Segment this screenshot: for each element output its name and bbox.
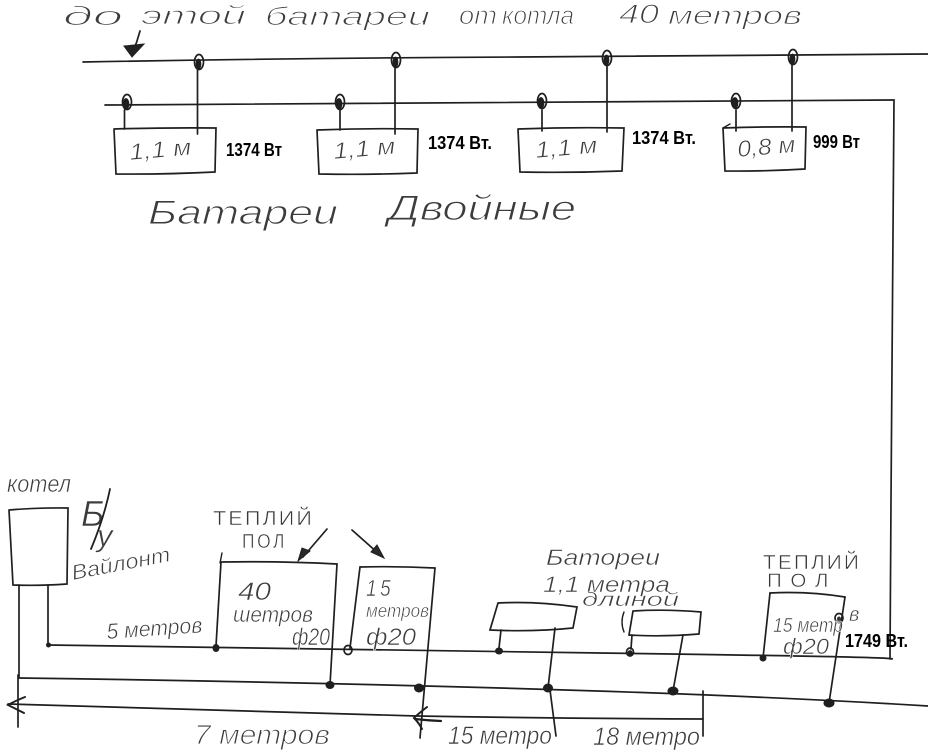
svg-text:1374 Вт.: 1374 Вт. [428,133,492,153]
svg-text:1,1 м: 1,1 м [332,133,396,164]
svg-text:от: от [459,0,497,30]
svg-text:метров: метров [366,601,429,621]
svg-text:1,1 м: 1,1 м [534,132,598,163]
svg-text:1374 Вт: 1374 Вт [226,140,282,160]
svg-text:0,8 м: 0,8 м [736,131,796,162]
svg-text:до: до [63,1,123,31]
svg-text:ТЕПЛИЙ: ТЕПЛИЙ [213,506,314,530]
svg-text:котел: котел [7,471,71,498]
svg-text:1374 Вт.: 1374 Вт. [632,128,696,148]
svg-text:999 Вт: 999 Вт [813,132,860,152]
svg-text:ф20: ф20 [366,624,417,651]
svg-text:длиной: длиной [582,590,680,611]
svg-text:Батареи: Батареи [148,194,338,232]
svg-text:метров: метров [668,0,802,30]
svg-text:5 метров: 5 метров [106,612,204,644]
svg-text:15: 15 [366,575,394,601]
svg-text:1749 Вт.: 1749 Вт. [845,631,908,651]
svg-text:Батореи: Батореи [546,545,660,570]
svg-text:у: у [95,518,115,553]
svg-text:1,1 м: 1,1 м [128,134,192,165]
svg-text:ПОЛ: ПОЛ [242,531,287,553]
svg-text:7 метров: 7 метров [194,719,330,750]
svg-text:этой: этой [141,0,246,30]
svg-text:40: 40 [619,0,659,29]
svg-text:ПОЛ: ПОЛ [767,571,837,592]
svg-text:ф20: ф20 [292,624,331,651]
svg-text:Двойные: Двойные [383,189,576,228]
svg-text:15 метро: 15 метро [448,722,552,750]
svg-text:котла: котла [502,0,574,30]
svg-text:Вайлонт: Вайлонт [70,543,173,585]
svg-text:батареи: батареи [265,1,430,31]
svg-text:18 метро: 18 метро [593,723,700,750]
svg-text:в: в [849,604,859,626]
svg-text:ф20: ф20 [783,634,830,659]
